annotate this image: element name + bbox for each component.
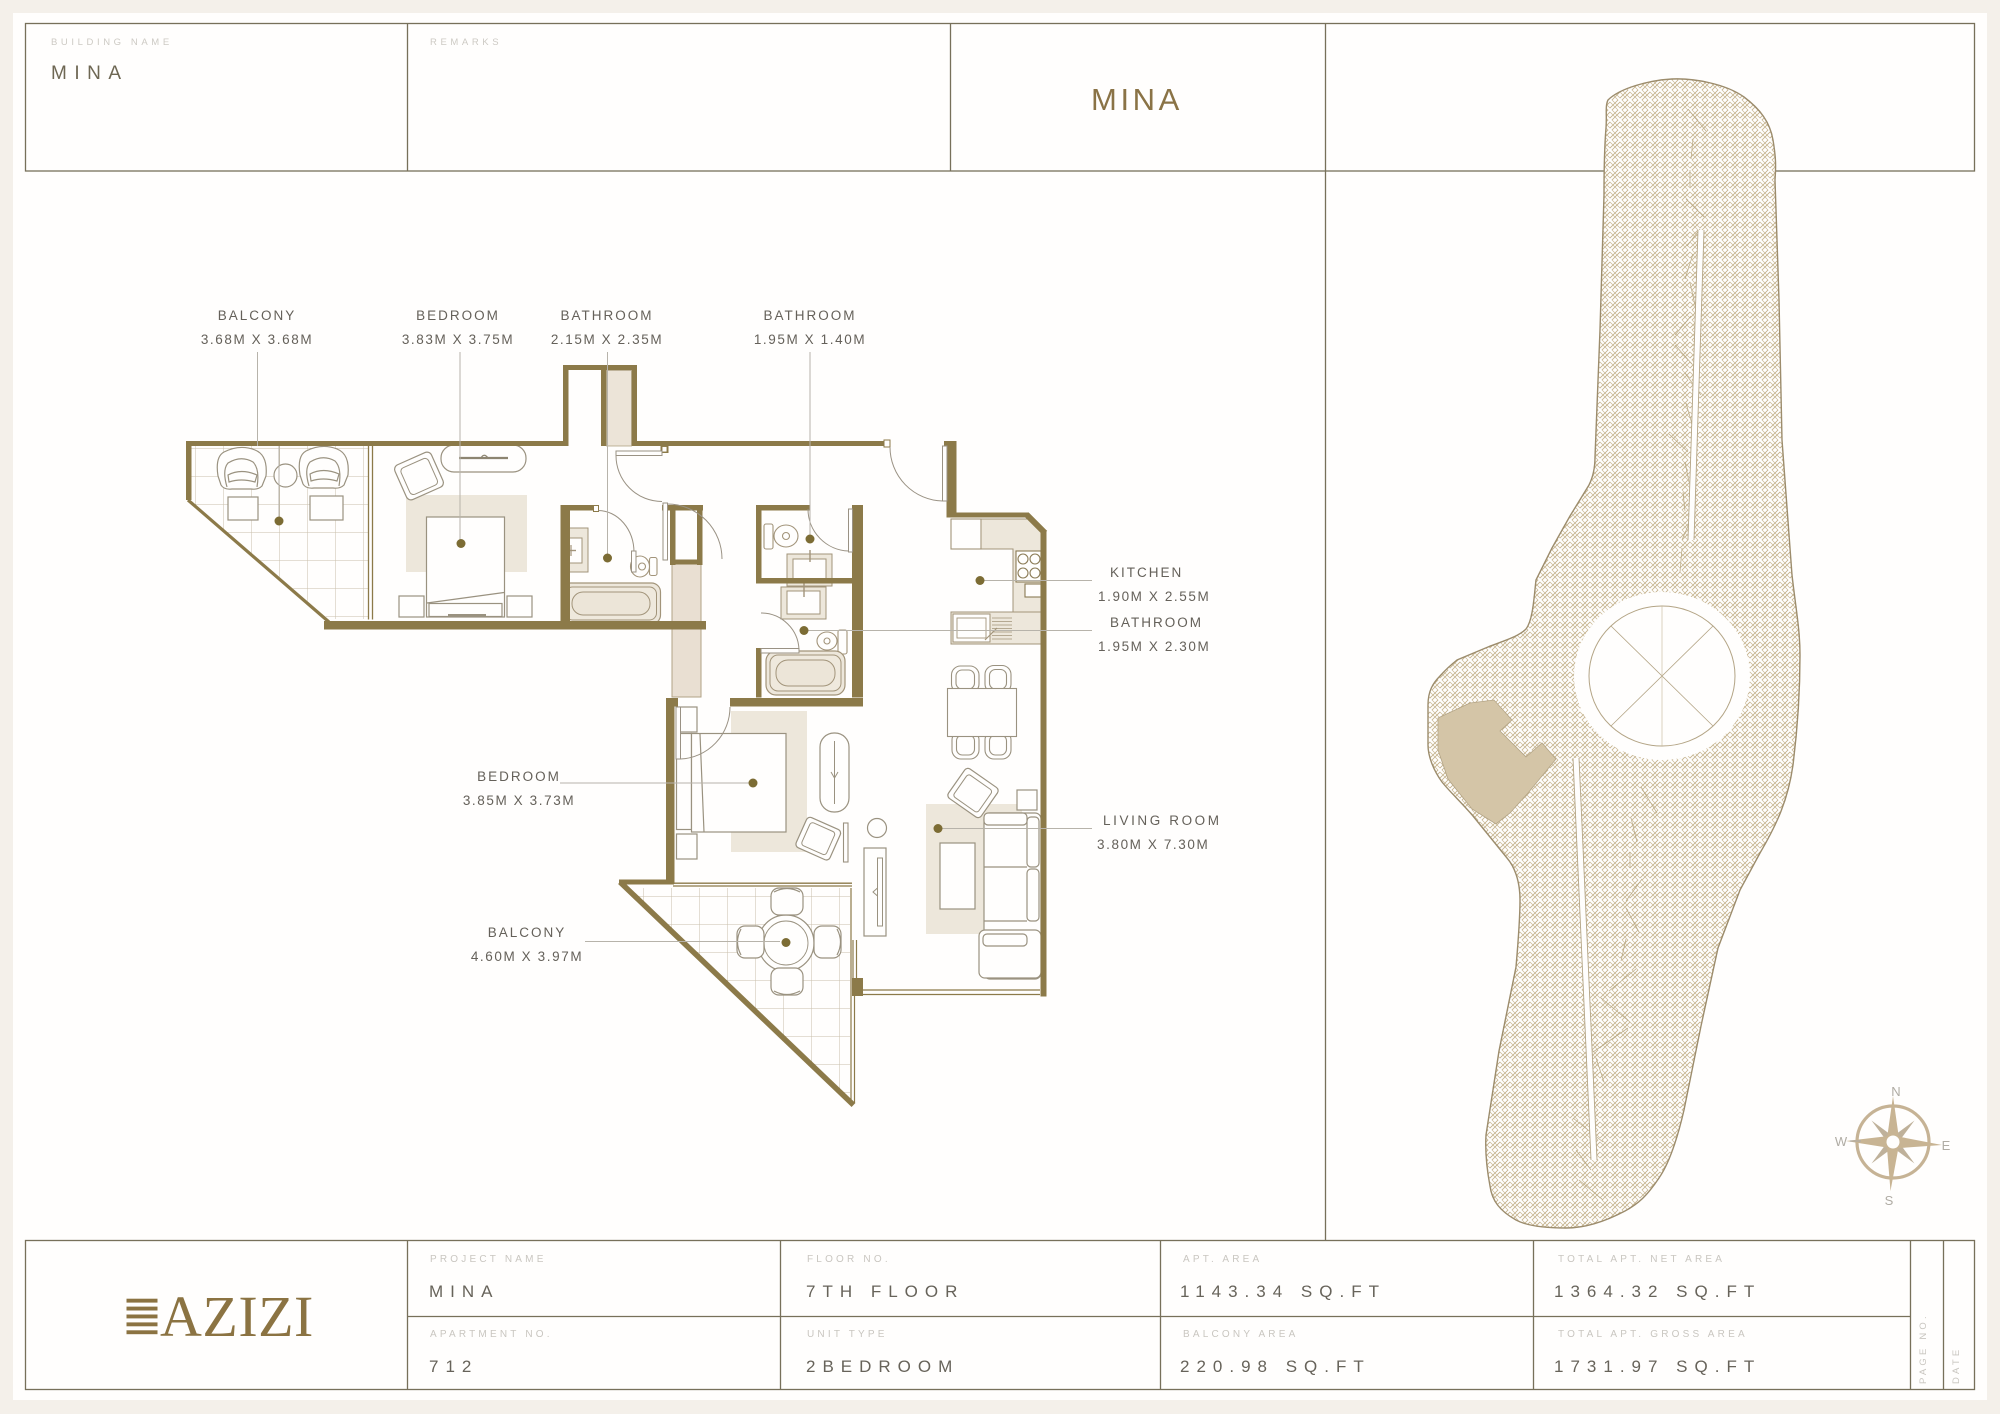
svg-text:E: E xyxy=(1942,1138,1951,1153)
svg-text:APARTMENT NO.: APARTMENT NO. xyxy=(430,1329,553,1340)
svg-text:APT. AREA: APT. AREA xyxy=(1183,1254,1262,1265)
svg-text:712: 712 xyxy=(429,1357,478,1376)
svg-text:S: S xyxy=(1885,1193,1894,1208)
svg-text:BATHROOM: BATHROOM xyxy=(561,308,654,323)
svg-text:4.60M X 3.97M: 4.60M X 3.97M xyxy=(471,949,583,964)
svg-text:BALCONY AREA: BALCONY AREA xyxy=(1183,1329,1298,1340)
svg-text:DATE: DATE xyxy=(1951,1347,1962,1384)
svg-text:KITCHEN: KITCHEN xyxy=(1110,565,1183,580)
svg-text:BATHROOM: BATHROOM xyxy=(764,308,857,323)
svg-text:2BEDROOM: 2BEDROOM xyxy=(806,1357,959,1376)
svg-text:3.80M X 7.30M: 3.80M X 7.30M xyxy=(1097,837,1209,852)
svg-text:1364.32 SQ.FT: 1364.32 SQ.FT xyxy=(1554,1282,1761,1301)
svg-text:FLOOR NO.: FLOOR NO. xyxy=(807,1254,891,1265)
svg-text:BEDROOM: BEDROOM xyxy=(416,308,500,323)
svg-text:MINA: MINA xyxy=(429,1282,500,1301)
svg-text:7TH FLOOR: 7TH FLOOR xyxy=(806,1282,964,1301)
svg-text:BALCONY: BALCONY xyxy=(218,308,297,323)
svg-text:MINA: MINA xyxy=(51,63,129,84)
svg-text:TOTAL APT. NET AREA: TOTAL APT. NET AREA xyxy=(1558,1254,1725,1265)
svg-text:1731.97 SQ.FT: 1731.97 SQ.FT xyxy=(1554,1357,1761,1376)
svg-text:1.90M X 2.55M: 1.90M X 2.55M xyxy=(1098,589,1210,604)
svg-text:LIVING ROOM: LIVING ROOM xyxy=(1103,813,1222,828)
svg-text:220.98 SQ.FT: 220.98 SQ.FT xyxy=(1180,1357,1371,1376)
svg-text:REMARKS: REMARKS xyxy=(430,37,502,48)
svg-text:TOTAL APT. GROSS AREA: TOTAL APT. GROSS AREA xyxy=(1558,1329,1748,1340)
svg-text:PAGE NO.: PAGE NO. xyxy=(1918,1313,1929,1384)
svg-text:1.95M X 1.40M: 1.95M X 1.40M xyxy=(754,332,866,347)
svg-text:3.83M X 3.75M: 3.83M X 3.75M xyxy=(402,332,514,347)
svg-text:BALCONY: BALCONY xyxy=(488,925,567,940)
svg-text:3.85M X 3.73M: 3.85M X 3.73M xyxy=(463,793,575,808)
svg-text:BATHROOM: BATHROOM xyxy=(1110,615,1203,630)
svg-text:BUILDING NAME: BUILDING NAME xyxy=(51,37,173,48)
svg-text:BEDROOM: BEDROOM xyxy=(477,769,561,784)
svg-text:N: N xyxy=(1891,1084,1900,1099)
svg-text:MINA: MINA xyxy=(1091,82,1183,117)
svg-text:W: W xyxy=(1835,1134,1848,1149)
svg-text:PROJECT NAME: PROJECT NAME xyxy=(430,1254,547,1265)
svg-text:2.15M X 2.35M: 2.15M X 2.35M xyxy=(551,332,663,347)
svg-text:1143.34 SQ.FT: 1143.34 SQ.FT xyxy=(1180,1282,1386,1301)
svg-text:3.68M X 3.68M: 3.68M X 3.68M xyxy=(201,332,313,347)
svg-text:1.95M X 2.30M: 1.95M X 2.30M xyxy=(1098,639,1210,654)
svg-text:AZIZI: AZIZI xyxy=(160,1284,314,1349)
svg-text:UNIT TYPE: UNIT TYPE xyxy=(807,1329,888,1340)
